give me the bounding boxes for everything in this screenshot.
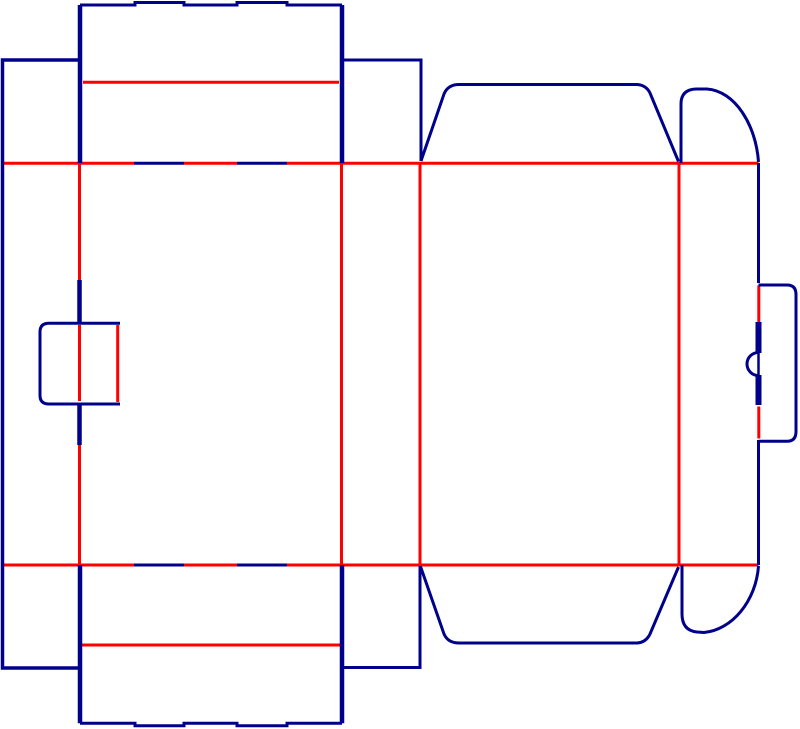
bottom-dust-flap-outline [421, 567, 679, 643]
side-bottom-flap-outline [343, 566, 420, 668]
top-ear-flap-outline [681, 89, 759, 163]
right-lock-tab-outline [759, 285, 797, 441]
top-dust-flap-outline [421, 85, 679, 162]
thumb-notch-arc [747, 353, 759, 376]
cut-lines-layer [3, 3, 797, 726]
bottom-ear-flap-outline [682, 565, 759, 633]
crease-lines-layer [3, 82, 759, 645]
dieline-stage [0, 0, 800, 729]
bottom-tuck-flap-edge [80, 723, 342, 725]
side-top-flap-outline [343, 60, 421, 161]
carton-dieline-drawing [0, 0, 800, 729]
top-tuck-flap-edge [80, 3, 342, 6]
